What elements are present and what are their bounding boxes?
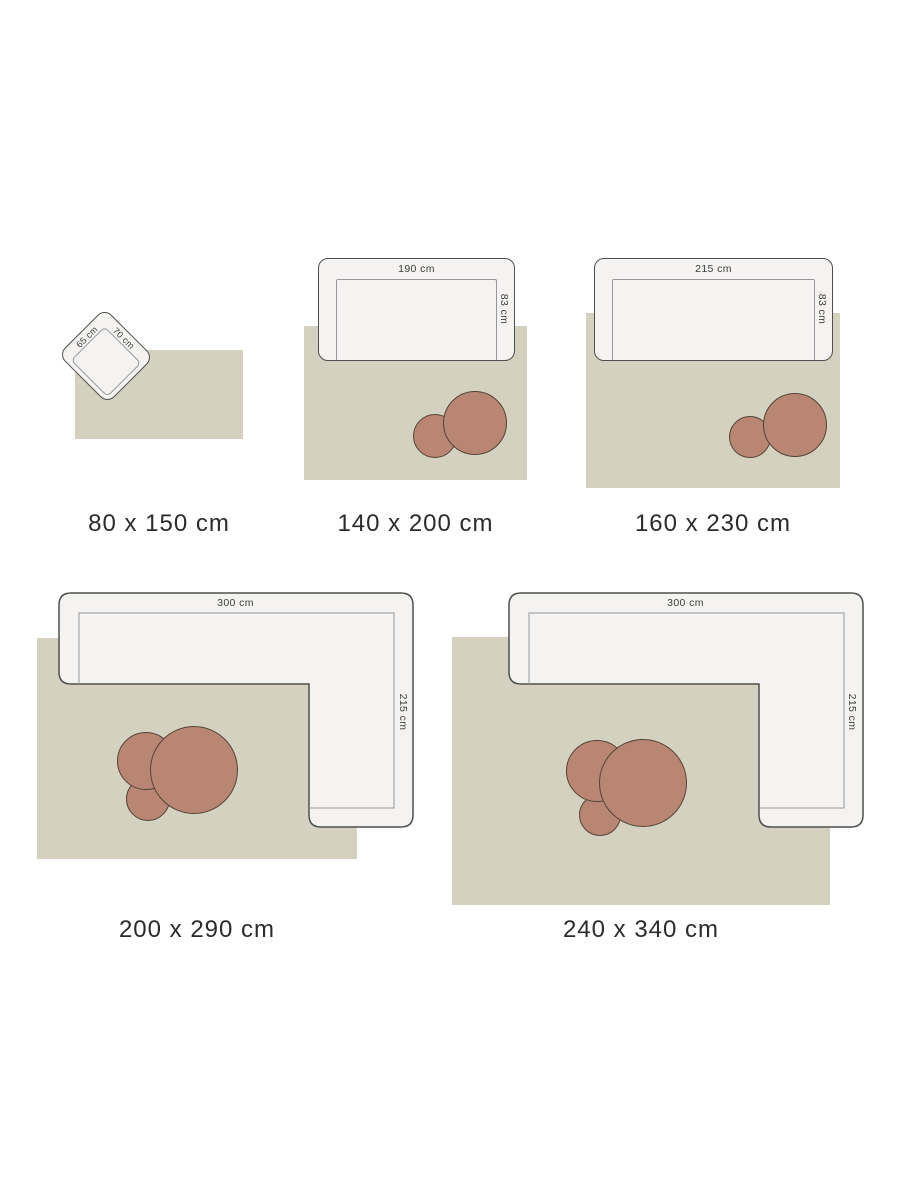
coffee-table-small <box>126 777 170 821</box>
armchair-seat <box>71 326 142 397</box>
rug-size-label: 140 x 200 cm <box>304 510 527 538</box>
rug-size-label: 80 x 150 cm <box>75 510 243 538</box>
armchair-depth-label: 65 cm <box>74 324 99 349</box>
rug-swatch <box>586 313 840 488</box>
rug-swatch <box>304 326 527 480</box>
rug-size-guide: 65 cm 70 cm 80 x 150 cm 190 cm 83 cm 140… <box>0 0 900 1200</box>
rug-size-label: 200 x 290 cm <box>37 916 357 944</box>
sofa-width-label: 300 cm <box>508 596 863 610</box>
sofa-seat <box>612 279 815 360</box>
armchair: 65 cm 70 cm <box>58 308 154 404</box>
sofa <box>594 258 833 361</box>
sofa-depth-label: 215 cm <box>396 694 410 731</box>
diagram-80x150: 65 cm 70 cm 80 x 150 cm <box>0 0 900 1200</box>
corner-sofa <box>58 592 414 828</box>
corner-sofa-outline <box>59 593 413 827</box>
diagram-200x290: 300 cm 215 cm 200 x 290 cm <box>0 0 900 1200</box>
armchair-width-label: 70 cm <box>111 326 136 351</box>
coffee-table-large <box>443 391 507 455</box>
sofa-width-label: 300 cm <box>58 596 413 610</box>
diagram-160x230: 215 cm 83 cm 160 x 230 cm <box>0 0 900 1200</box>
coffee-table-medium <box>117 732 175 790</box>
sofa-width-label: 215 cm <box>594 262 833 276</box>
corner-sofa-outline <box>509 593 863 827</box>
coffee-table-large <box>763 393 827 457</box>
rug-size-label: 160 x 230 cm <box>586 510 840 538</box>
sofa <box>318 258 515 361</box>
corner-sofa <box>508 592 864 828</box>
coffee-table-small <box>729 416 771 458</box>
rug-swatch <box>75 350 243 439</box>
corner-sofa-seat <box>529 613 844 808</box>
sofa-width-label: 190 cm <box>318 262 515 276</box>
rug-swatch <box>452 637 830 905</box>
coffee-table-small <box>413 414 457 458</box>
coffee-table-medium <box>566 740 628 802</box>
sofa-depth-label: 83 cm <box>497 294 511 325</box>
rug-swatch <box>37 638 357 859</box>
sofa-depth-label: 83 cm <box>815 294 829 325</box>
coffee-table-large <box>599 739 687 827</box>
diagram-140x200: 190 cm 83 cm 140 x 200 cm <box>0 0 900 1200</box>
sofa-seat <box>336 279 497 360</box>
sofa-depth-label: 215 cm <box>845 694 859 731</box>
coffee-table-large <box>150 726 238 814</box>
rug-size-label: 240 x 340 cm <box>452 916 830 944</box>
coffee-table-small <box>579 794 621 836</box>
diagram-240x340: 300 cm 215 cm 240 x 340 cm <box>0 0 900 1200</box>
corner-sofa-seat <box>79 613 394 808</box>
